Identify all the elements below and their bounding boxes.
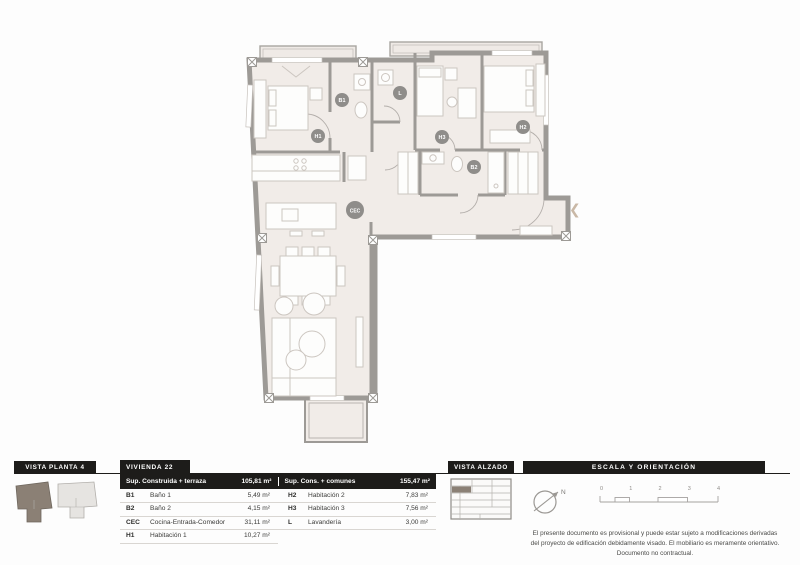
svg-text:H1: H1	[315, 134, 322, 140]
elevation-diagram	[450, 478, 512, 520]
svg-text:CEC: CEC	[350, 208, 361, 214]
header-right: Sup. Cons. + comunes 155,47 m²	[279, 478, 437, 485]
room-label-l: L	[393, 86, 407, 100]
table-row: H1Habitación 110,27 m²	[120, 530, 436, 544]
disclaimer-text: El presente documento es provisional y p…	[512, 529, 798, 559]
built-area-value: 105,81 m²	[241, 478, 271, 485]
disclaimer-line-2: del proyecto de edificación debidamente …	[512, 539, 798, 549]
room-label-b1: B1	[335, 93, 349, 107]
north-compass-icon: N	[528, 484, 572, 520]
disclaimer-line-1: El presente documento es provisional y p…	[512, 529, 798, 539]
vista-planta-title: VISTA PLANTA 4	[25, 464, 84, 471]
common-area-value: 155,47 m²	[400, 478, 430, 485]
built-area-label: Sup. Construida + terraza	[126, 478, 206, 485]
escala-title: ESCALA Y ORIENTACIÓN	[592, 464, 696, 471]
area-table-header: Sup. Construida + terraza 105,81 m² Sup.…	[120, 474, 436, 489]
terrace	[305, 399, 367, 442]
scale-bar: 0 1 2 3 4	[598, 486, 722, 504]
svg-text:B2: B2	[471, 165, 478, 171]
vista-alzado-header: VISTA ALZADO	[448, 461, 514, 474]
unit-title-tab: VIVIENDA 22	[120, 460, 190, 474]
table-row: CECCocina-Entrada-Comedor31,11 m² LLavan…	[120, 516, 436, 530]
room-label-b2: B2	[467, 160, 481, 174]
room-label-h1: H1	[311, 129, 325, 143]
svg-text:H3: H3	[439, 135, 446, 141]
plant-thumbnail	[12, 480, 104, 528]
vista-alzado-title: VISTA ALZADO	[454, 464, 508, 471]
unit-title: VIVIENDA 22	[126, 464, 173, 471]
escala-header: ESCALA Y ORIENTACIÓN	[523, 461, 765, 474]
room-label-cec: CEC	[346, 201, 364, 219]
disclaimer-line-3: Documento no contractual.	[512, 549, 798, 559]
plan-sheet: H1 B1 L H3 H2 B2 CEC ❮ VISTA PLANTA 4 VI…	[0, 0, 800, 565]
adjacent-building	[58, 482, 97, 518]
entry-chevron-icon[interactable]: ❮	[569, 203, 581, 217]
svg-text:H2: H2	[520, 125, 527, 131]
highlighted-elevation-cell	[452, 487, 471, 493]
area-table-body: B1Baño 15,49 m² H2Habitación 27,83 m² B2…	[120, 489, 436, 543]
north-label: N	[561, 489, 566, 496]
room-label-h2: H2	[516, 120, 530, 134]
svg-text:B1: B1	[339, 98, 346, 104]
scale-bar-graphic	[598, 492, 722, 504]
floor-plan: H1 B1 L H3 H2 B2 CEC	[225, 20, 605, 455]
table-row: B1Baño 15,49 m² H2Habitación 27,83 m²	[120, 489, 436, 503]
header-left: Sup. Construida + terraza 105,81 m²	[120, 478, 278, 485]
room-label-h3: H3	[435, 130, 449, 144]
table-row: B2Baño 24,15 m² H3Habitación 37,56 m²	[120, 503, 436, 517]
common-area-label: Sup. Cons. + comunes	[285, 478, 356, 485]
vista-planta-header: VISTA PLANTA 4	[14, 461, 96, 474]
